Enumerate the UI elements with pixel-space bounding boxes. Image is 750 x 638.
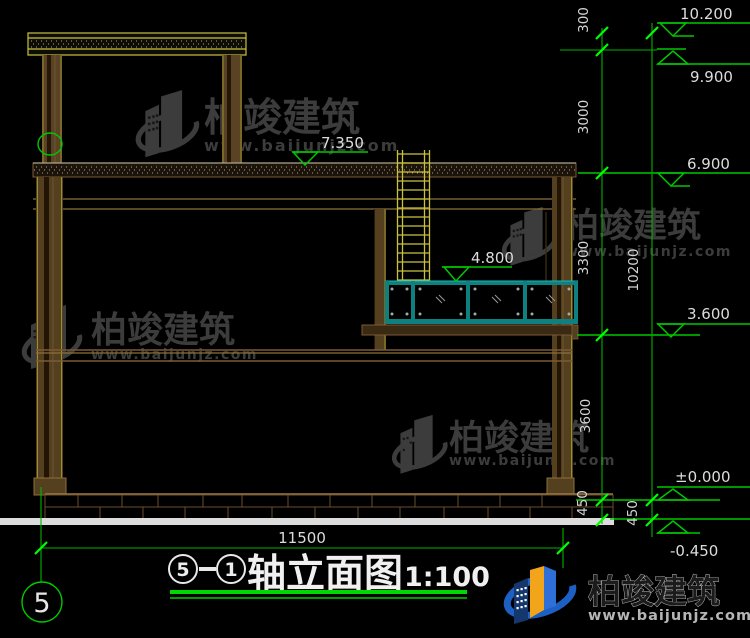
terrace-slab (362, 325, 578, 339)
drawing-title: 5 1 轴立面图 1:100 (169, 552, 490, 599)
glass-hatch-marks (436, 295, 555, 303)
dim-450-inner-label: 450 (575, 490, 591, 516)
title-axis-from-label: 5 (176, 559, 189, 581)
level-canopy-label: 7.350 (321, 134, 364, 152)
dim-3600-label: 3600 (578, 399, 594, 433)
level-ground-label: ±0.000 (675, 468, 731, 486)
column-bases (34, 478, 574, 495)
wall-right (552, 177, 573, 495)
watermark-right: 柏竣建筑 www.baijunjz.com (500, 206, 732, 266)
pergola-column-left (42, 55, 62, 164)
footer-brand-text: 柏竣建筑 (588, 572, 720, 611)
title-dash (199, 567, 216, 571)
watermark-site-text: www.baijunjz.com (449, 453, 616, 469)
dim-3000-label: 3000 (576, 100, 592, 134)
title-underline-2 (170, 597, 467, 599)
level-roof-top-label: 10.200 (680, 5, 733, 23)
level-main-roof-label: 6.900 (687, 155, 730, 173)
level-site-label: -0.450 (670, 542, 718, 560)
level-terrace-label: 3.600 (687, 305, 730, 323)
watermark-brand-text: 柏竣建筑 (565, 206, 701, 246)
dim-10200-label: 10200 (626, 249, 642, 292)
footer-site-text: www.baijunjz.com (588, 608, 750, 624)
pergola-column-right (222, 55, 242, 164)
title-underline-1 (170, 590, 467, 594)
dim-300-label: 300 (576, 7, 592, 33)
wall-left (36, 177, 63, 495)
dim-11500-label: 11500 (278, 529, 326, 547)
brand-logo-color-icon (502, 566, 577, 624)
stone-foundation (45, 494, 613, 520)
brand-logo-icon (133, 90, 201, 157)
brand-logo-icon (390, 415, 450, 474)
cad-elevation-screenshot: 柏竣建筑 www.baijunjz.com 柏竣建筑 www.baijunjz.… (0, 0, 750, 638)
title-axis-to-label: 1 (224, 559, 237, 581)
ground-line (0, 518, 614, 525)
level-railing-label: 4.800 (471, 249, 514, 267)
pergola-roof-slab (28, 33, 246, 55)
elevation-drawing: 柏竣建筑 www.baijunjz.com 柏竣建筑 www.baijunjz.… (0, 0, 750, 638)
brand-logo-footer: 柏竣建筑 www.baijunjz.com (502, 566, 750, 624)
glass-panel-fasteners (391, 288, 571, 316)
watermark-brand-text: 柏竣建筑 (91, 310, 235, 351)
level-roof-label: 9.900 (690, 68, 733, 86)
roof-beam-lines (33, 199, 576, 209)
dim-3300-label: 3300 (576, 241, 592, 275)
dim-450-outer-label: 450 (625, 500, 641, 526)
axis-bubble-label: 5 (33, 588, 50, 619)
title-scale: 1:100 (404, 562, 490, 593)
terrace-glass-railing (385, 281, 578, 324)
